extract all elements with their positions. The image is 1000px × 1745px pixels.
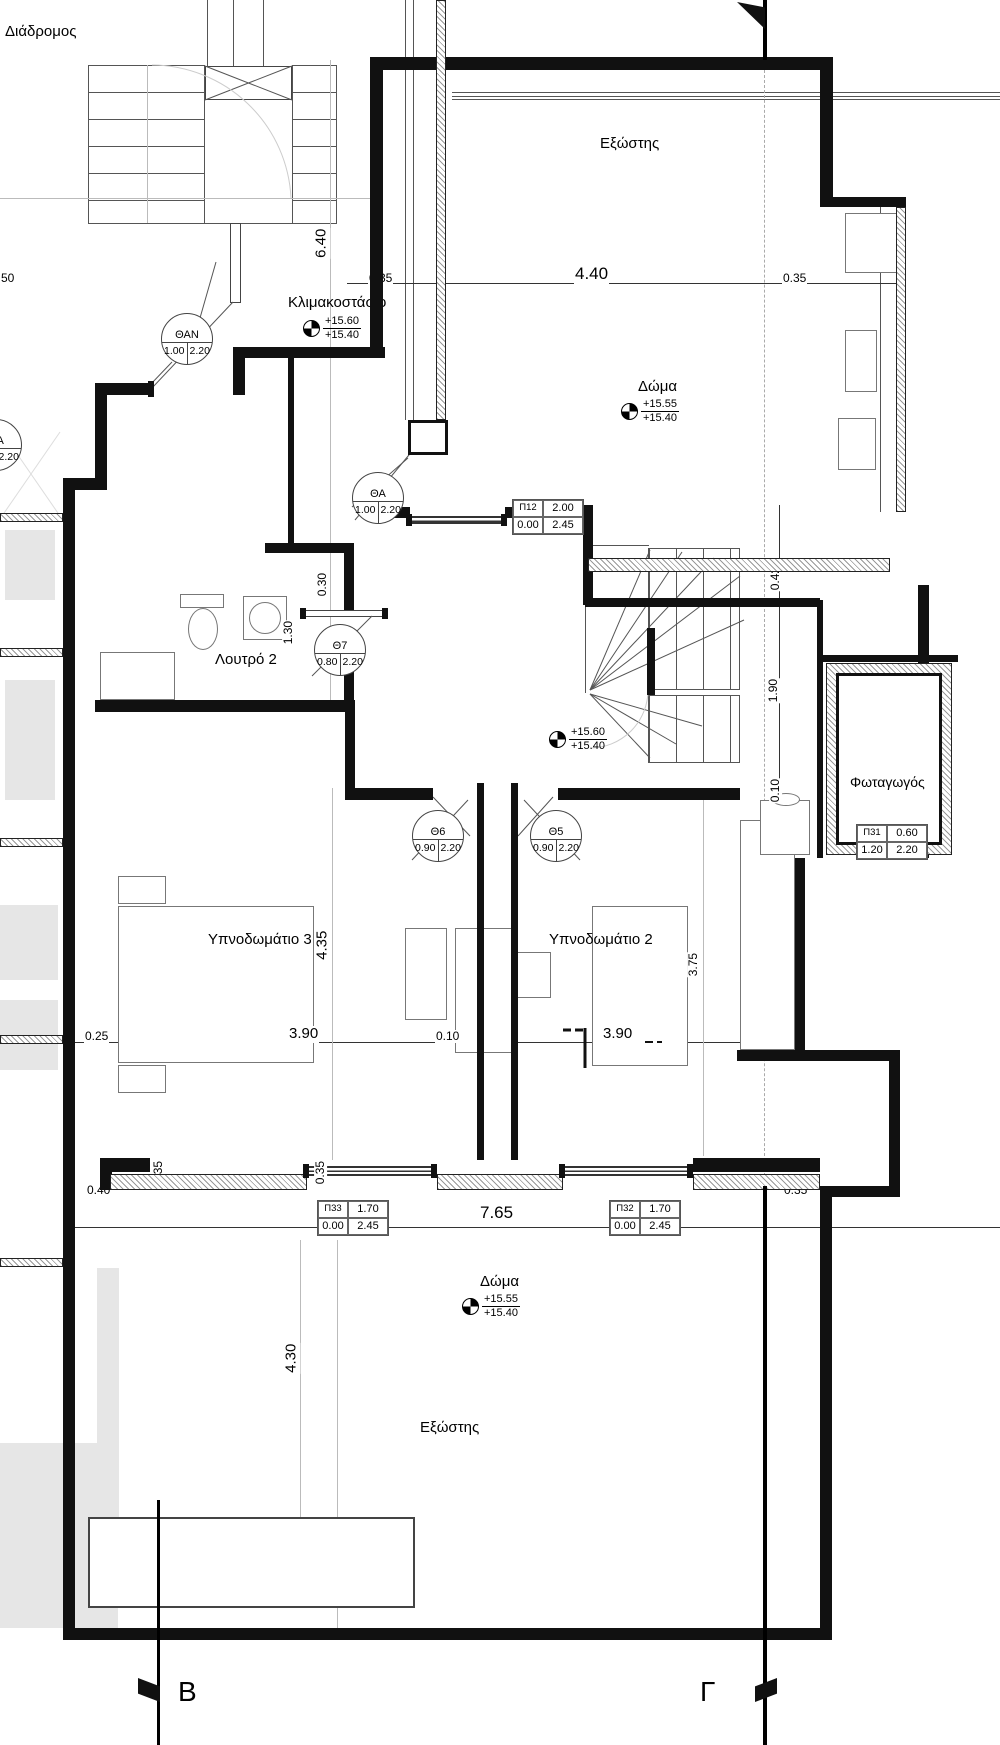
window-sill: 0.00 — [513, 517, 543, 534]
door-tag-th5: Θ5 0.902.20 — [530, 810, 582, 862]
wall-segment — [344, 553, 354, 610]
window-id: Π12 — [513, 500, 543, 517]
level-marker-hall: +15.60+15.40 — [549, 726, 607, 753]
door-jamb — [148, 381, 154, 397]
door-tag-width: 0.90 — [531, 840, 557, 861]
wall-segment — [585, 598, 820, 607]
hatched-wall — [110, 1174, 307, 1190]
room-label-corridor: Διάδρομος — [5, 24, 76, 41]
dim-bed2-width: 3.90 — [602, 1026, 633, 1043]
floor-plan: Β Γ — [0, 0, 1000, 1745]
dim-bed2-height: 3.75 — [687, 952, 700, 977]
dim-wall-030: 0.30 — [316, 572, 329, 597]
window-id: Π31 — [857, 825, 887, 842]
dim-top-mid: 4.40 — [574, 265, 609, 284]
wall-segment — [737, 1050, 900, 1061]
door-tag-th7: Θ7 0.802.20 — [314, 624, 366, 676]
hatched-wall — [0, 648, 63, 657]
door-tag-height: 2.20 — [379, 502, 404, 523]
dim-top-right: 0.35 — [782, 272, 807, 285]
wall-segment — [288, 358, 294, 545]
dim-terrace-height: 4.30 — [283, 1343, 300, 1374]
room-label-bedroom2: Υπνοδωμάτιο 2 — [549, 932, 653, 949]
level-marker-stairwell: +15.60+15.40 — [303, 315, 361, 342]
window-jamb — [687, 1164, 693, 1178]
wall-segment — [817, 655, 958, 662]
room-label-roof-bottom: Δώμα — [480, 1274, 519, 1291]
level-value-bottom: +15.40 — [569, 740, 607, 753]
level-value-bottom: +15.40 — [323, 329, 361, 342]
window-table-p33: Π33 1.70 0.00 2.45 — [317, 1200, 389, 1236]
window-p32 — [563, 1166, 689, 1176]
window-height: 2.45 — [348, 1218, 388, 1235]
partition-wall — [511, 783, 518, 1160]
level-value-top: +15.55 — [641, 398, 679, 412]
hatched-wall — [0, 1035, 63, 1044]
wall-segment — [63, 1628, 832, 1640]
window-height: 2.45 — [543, 517, 583, 534]
room-label-balcony-top: Εξώστης — [600, 136, 659, 153]
dim-bed3-width: 3.90 — [288, 1026, 319, 1043]
window-table-p31: Π31 0.60 1.20 2.20 — [856, 824, 928, 860]
window-jamb — [406, 514, 412, 526]
hatched-wall — [896, 207, 906, 512]
door-jamb-block — [408, 420, 448, 455]
door-tag-th6: Θ6 0.902.20 — [412, 810, 464, 862]
dim-stair-height: 6.40 — [313, 228, 330, 259]
door-jamb — [300, 608, 306, 619]
window-sill: 1.20 — [857, 842, 887, 859]
window-width: 0.60 — [887, 825, 927, 842]
door-tag-height: 2.20 — [0, 449, 21, 470]
window-sill: 0.00 — [610, 1218, 640, 1235]
wall-segment — [795, 858, 805, 1061]
window-height: 2.20 — [887, 842, 927, 859]
window-id: Π33 — [318, 1201, 348, 1218]
wall-segment — [889, 1050, 900, 1197]
door-tag-width: 0.80 — [315, 654, 341, 675]
level-marker-roof-top: +15.55+15.40 — [621, 398, 679, 425]
window-table-p32: Π32 1.70 0.00 2.45 — [609, 1200, 681, 1236]
hatched-wall — [0, 513, 63, 522]
wall-segment — [95, 700, 355, 712]
window-width: 2.00 — [543, 500, 583, 517]
wall-segment — [265, 543, 354, 553]
window-jamb — [559, 1164, 565, 1178]
wall-segment — [345, 700, 355, 800]
dim-low-765: 7.65 — [479, 1204, 514, 1223]
level-value-top: +15.55 — [482, 1293, 520, 1307]
room-label-bedroom3: Υπνοδωμάτιο 3 — [208, 932, 312, 949]
section-line-b — [157, 1500, 160, 1745]
window-width: 1.70 — [348, 1201, 388, 1218]
dim-bath-130: 1.30 — [282, 620, 295, 645]
level-value-bottom: +15.40 — [482, 1307, 520, 1320]
dim-mid-010: 0.10 — [435, 1030, 460, 1043]
hatched-wall — [0, 838, 63, 847]
wall-segment — [233, 347, 385, 358]
door-tag-id: ΘΑ — [0, 420, 21, 448]
window-jamb — [431, 1164, 437, 1178]
window-sill: 0.00 — [318, 1218, 348, 1235]
wall-segment — [817, 600, 823, 858]
dim-mid-025: 0.25 — [84, 1030, 109, 1043]
window-width: 1.70 — [640, 1201, 680, 1218]
door-tag-id: Θ5 — [531, 811, 581, 839]
door-tag-tha: ΘΑ 1.002.20 — [352, 472, 404, 524]
room-label-balcony-bottom: Εξώστης — [420, 1420, 479, 1437]
wall-segment — [820, 57, 833, 207]
level-symbol-icon — [303, 320, 320, 337]
hatched-wall — [0, 1258, 63, 1267]
lightwell-shaft — [836, 673, 942, 845]
dim-edge-50: 50 — [0, 272, 15, 285]
door-tag-id: Θ6 — [413, 811, 463, 839]
hatched-wall — [588, 558, 890, 572]
level-symbol-icon — [462, 1298, 479, 1315]
wall-segment — [820, 197, 906, 207]
level-symbol-icon — [549, 731, 566, 748]
door-tag-id: ΘΑ — [353, 473, 403, 501]
wall-segment — [345, 788, 433, 800]
dim-right-010: 0.10 — [769, 778, 782, 803]
room-label-lightwell: Φωταγωγός — [850, 775, 925, 790]
door-jamb — [382, 608, 388, 619]
door-tag-id: ΘΑΝ — [162, 314, 212, 342]
partition-wall — [477, 783, 484, 1160]
wall-segment — [558, 788, 740, 800]
door-tag-id: Θ7 — [315, 625, 365, 653]
window-jamb — [501, 514, 507, 526]
level-value-top: +15.60 — [569, 726, 607, 740]
room-label-bathroom: Λουτρό 2 — [215, 652, 277, 669]
door-tag-width: 1.00 — [162, 343, 188, 364]
wall-segment — [820, 1186, 832, 1640]
hatched-wall — [693, 1174, 820, 1190]
wall-segment — [820, 1186, 900, 1197]
wall-segment — [95, 383, 107, 490]
window-p12 — [410, 516, 505, 524]
door-tag-height: 2.20 — [439, 840, 464, 861]
door-tag-width: 1.00 — [353, 502, 379, 523]
wall-segment — [370, 57, 383, 358]
door-tag-height: 2.20 — [557, 840, 582, 861]
hatched-wall — [436, 0, 446, 420]
level-symbol-icon — [621, 403, 638, 420]
door-tag-width: 0.90 — [413, 840, 439, 861]
level-value-top: +15.60 — [323, 315, 361, 329]
window-height: 2.45 — [640, 1218, 680, 1235]
door-tag-tha-edge: ΘΑ 2.20 — [0, 419, 22, 471]
door-tag-than: ΘΑΝ 1.002.20 — [161, 313, 213, 365]
wall-segment — [63, 478, 75, 1640]
level-marker-roof-bottom: +15.55+15.40 — [462, 1293, 520, 1320]
window-table-p12: Π12 2.00 0.00 2.45 — [512, 499, 584, 535]
dim-right-190: 1.90 — [767, 678, 780, 703]
level-value-bottom: +15.40 — [641, 412, 679, 425]
wall-segment — [583, 505, 593, 605]
stair-newel — [647, 628, 655, 695]
section-line-g — [763, 1186, 767, 1745]
door-tag-height: 2.20 — [188, 343, 213, 364]
window-jamb — [303, 1164, 309, 1178]
dim-bed3-height: 4.35 — [314, 930, 331, 961]
section-label-b: Β — [178, 1676, 197, 1708]
door-tag-height: 2.20 — [341, 654, 366, 675]
hatched-wall — [437, 1174, 563, 1190]
wall-segment — [233, 347, 245, 395]
wall-segment — [693, 1158, 820, 1172]
section-label-g: Γ — [700, 1676, 715, 1708]
overlay-lines — [0, 0, 1000, 1745]
window-id: Π32 — [610, 1201, 640, 1218]
room-label-roof-top: Δώμα — [638, 379, 677, 396]
dim-low-mid-035: 0.35 — [314, 1160, 327, 1185]
